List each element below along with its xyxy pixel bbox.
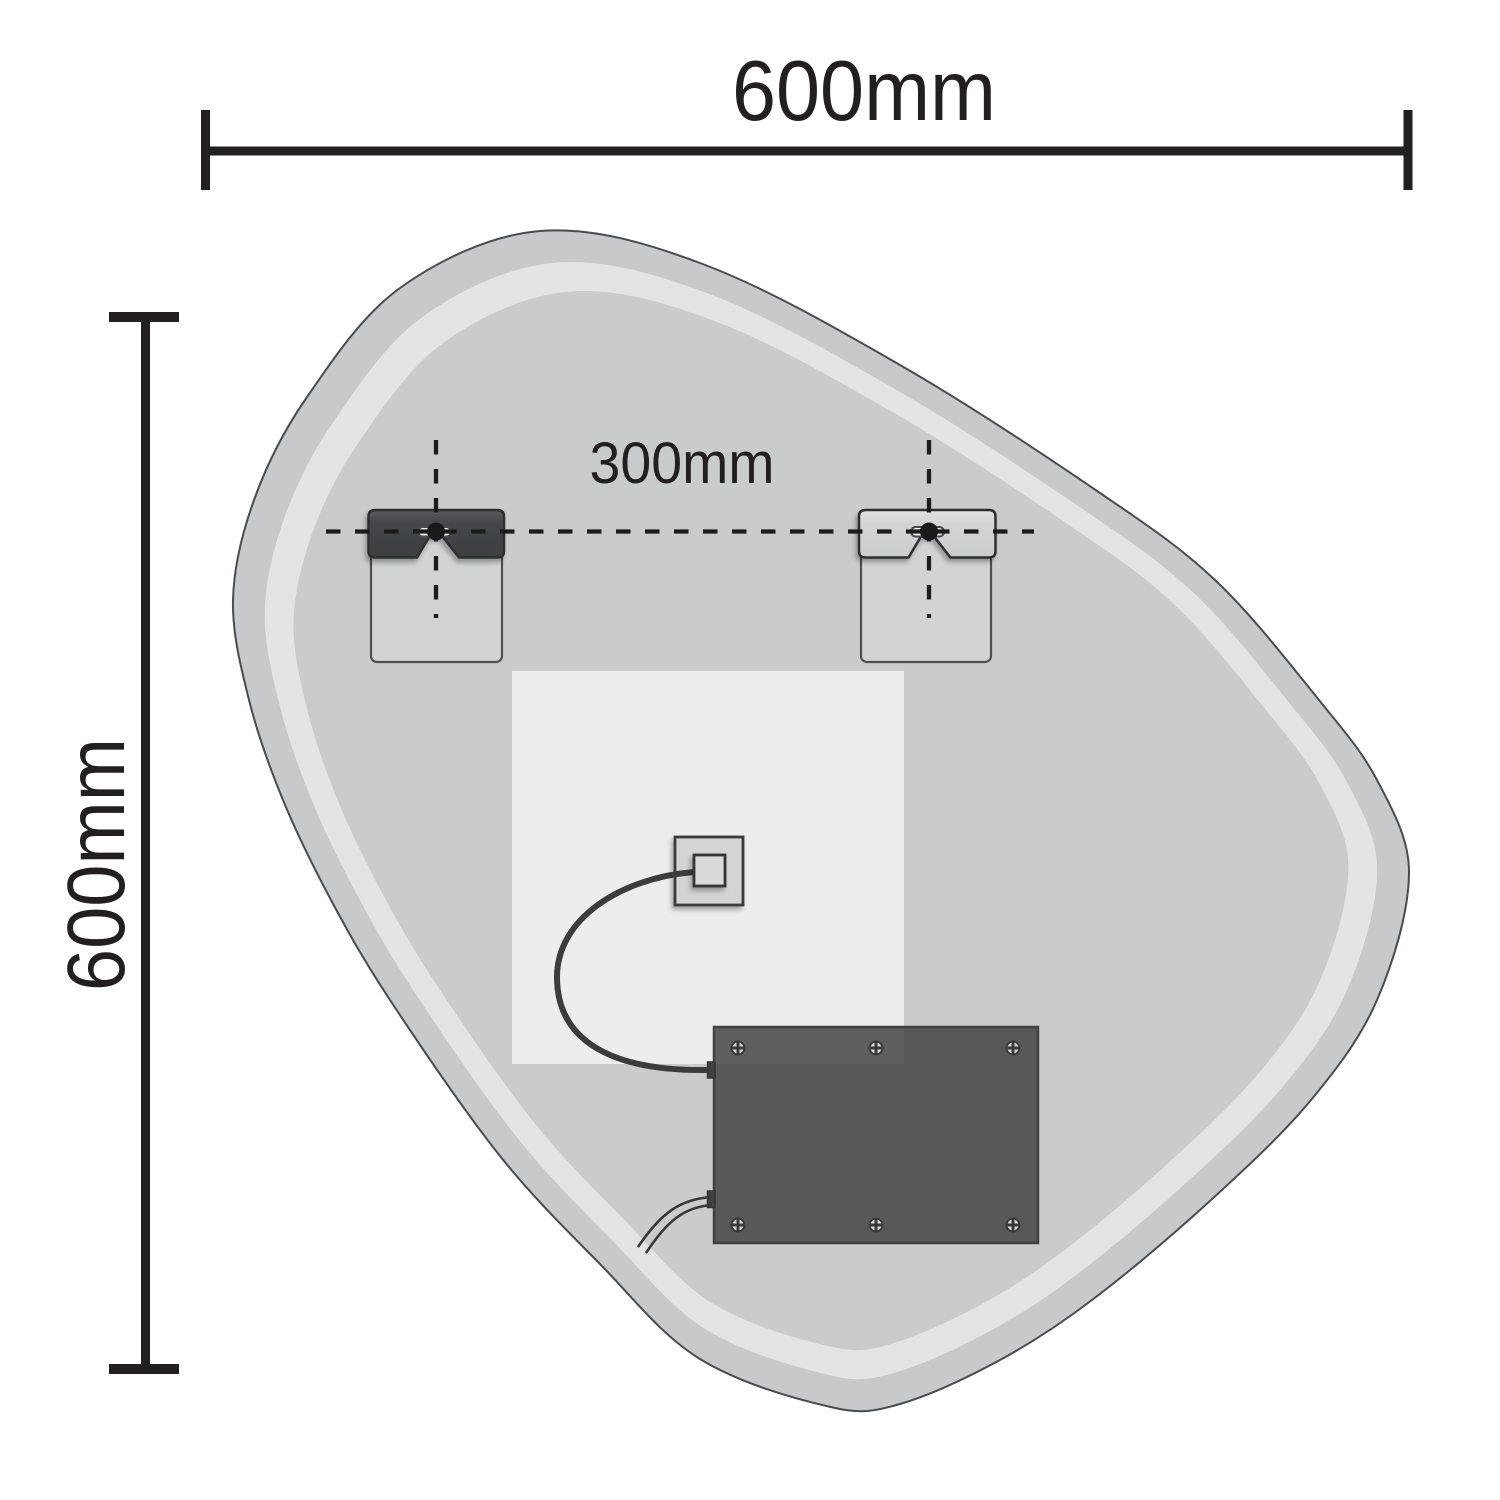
svg-text:600mm: 600mm (51, 738, 142, 991)
svg-text:600mm: 600mm (732, 44, 996, 139)
svg-text:300mm: 300mm (590, 431, 775, 496)
